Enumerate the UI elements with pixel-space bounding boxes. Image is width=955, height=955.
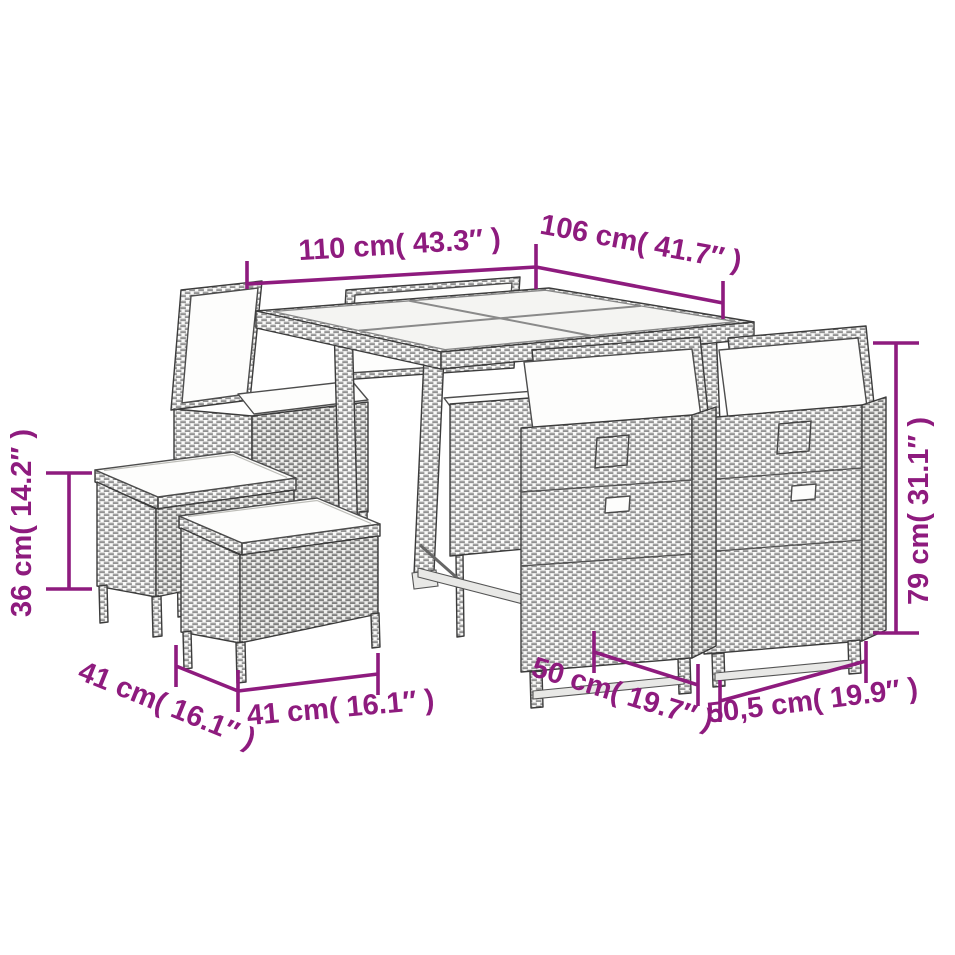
chair-leg	[456, 555, 464, 637]
chair-front-right	[704, 326, 886, 687]
chair-back-cushion	[182, 288, 258, 403]
dim-line-stool-height	[46, 473, 92, 589]
dimension-stool-height: 36 cm( 14.2″ )	[6, 429, 92, 617]
dimension-chair-depth: 50,5 cm( 19.9″ )	[705, 641, 920, 730]
product-dimension-diagram: 110 cm( 43.3″ ) 106 cm( 41.7″ ) 36 cm( 1…	[0, 0, 955, 955]
label-stool-depth: 41 cm( 16.1″ )	[74, 655, 260, 755]
chair-clip	[791, 484, 816, 501]
stool-front	[179, 498, 380, 683]
label-stool-width: 41 cm( 16.1″ )	[246, 684, 436, 732]
label-chair-depth: 50,5 cm( 19.9″ )	[705, 672, 920, 730]
dimension-stool-width: 41 cm( 16.1″ )	[238, 653, 436, 732]
diagram-svg: 110 cm( 43.3″ ) 106 cm( 41.7″ ) 36 cm( 1…	[0, 0, 955, 955]
chair-body-side	[862, 397, 886, 641]
chair-body-panel	[521, 415, 692, 672]
label-table-width: 110 cm( 43.3″ )	[298, 223, 502, 267]
label-stool-height: 36 cm( 14.2″ )	[6, 429, 38, 617]
furniture-illustration	[95, 277, 886, 708]
chair-body-side	[692, 407, 716, 658]
chair-front-center	[521, 337, 716, 708]
chair-clip	[605, 496, 630, 513]
chair-leg	[848, 640, 861, 674]
chair-body-panel	[704, 405, 862, 654]
label-table-depth: 106 cm( 41.7″ )	[538, 209, 745, 278]
dimension-stool-depth: 41 cm( 16.1″ )	[74, 645, 260, 755]
label-chair-height: 79 cm( 31.1″ )	[903, 417, 935, 605]
table-leg	[414, 356, 444, 574]
dim-line-stool-width	[238, 653, 378, 695]
